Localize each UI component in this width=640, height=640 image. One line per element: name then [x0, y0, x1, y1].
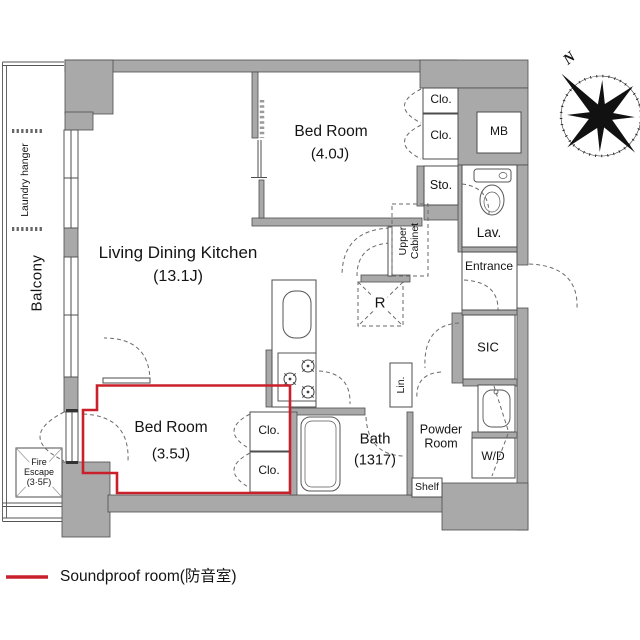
- room-label-entrance: Entrance: [465, 260, 513, 274]
- room-label-ldk-name: Living Dining Kitchen: [99, 243, 258, 263]
- room-label-bedroom35-size: (3.5J): [152, 445, 190, 462]
- label-fire-escape-1: Fire: [29, 457, 49, 467]
- label-fire-escape-3: (3·5F): [25, 477, 54, 487]
- compass-icon: [525, 40, 640, 187]
- windows: [64, 130, 78, 464]
- label-closet-3: Clo.: [258, 424, 279, 438]
- label-meter-box: MB: [490, 125, 508, 139]
- room-label-lavatory: Lav.: [477, 225, 502, 241]
- label-upper-cabinet: Upper Cabinet: [397, 217, 421, 265]
- door-leaf-hall: [388, 227, 392, 276]
- label-closet-1: Clo.: [430, 93, 451, 107]
- room-label-bedroom4-size: (4.0J): [311, 145, 349, 162]
- label-closet-4: Clo.: [258, 464, 279, 478]
- room-label-bath-size: (1317): [354, 453, 396, 470]
- label-closet-2: Clo.: [430, 129, 451, 143]
- room-label-sic: SIC: [477, 341, 499, 356]
- label-refrigerator: R: [373, 294, 388, 311]
- label-washer-dryer: W/D: [481, 450, 504, 464]
- room-label-ldk-size: (13.1J): [153, 268, 203, 286]
- legend-soundproof-label: Soundproof room(防音室): [60, 568, 237, 586]
- label-laundry-hanger: Laundry hanger: [19, 143, 31, 217]
- room-label-powder-room: Powder Room: [410, 423, 472, 452]
- room-label-bedroom4-name: Bed Room: [294, 123, 367, 141]
- room-label-bedroom35-name: Bed Room: [134, 419, 207, 437]
- stove-icon: [278, 353, 316, 401]
- floor-plan-drawing: [0, 0, 640, 640]
- room-label-bath-name: Bath: [360, 430, 391, 447]
- room-label-balcony: Balcony: [28, 255, 45, 312]
- kitchen-sink-icon: [283, 291, 311, 338]
- door-leaf-bedroom: [103, 378, 150, 383]
- label-linen: Lin.: [395, 377, 407, 394]
- floor-plan-page: Living Dining Kitchen (13.1J) Bed Room (…: [0, 0, 640, 640]
- label-shelf: Shelf: [415, 481, 439, 493]
- label-fire-escape-2: Escape: [22, 467, 56, 477]
- bathtub-icon: [301, 417, 340, 491]
- label-storage: Sto.: [430, 178, 452, 192]
